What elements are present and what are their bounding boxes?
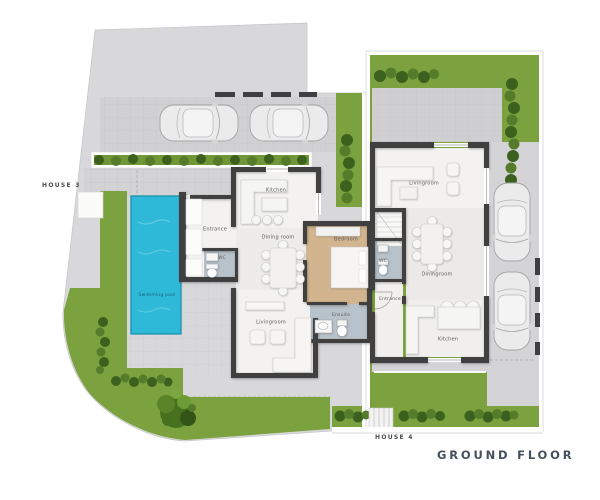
car-icon	[492, 272, 533, 350]
room-label-living-h3: Livingroom	[256, 321, 286, 326]
room-label-dining-h3: Dining room	[262, 236, 295, 241]
kitchen-island	[262, 198, 287, 211]
green-strip	[336, 93, 362, 207]
hedge-planter	[91, 152, 312, 168]
room-label-kitchen-h4: Kitchen	[438, 338, 458, 343]
car-icon	[492, 183, 533, 261]
pool-label: Swimming pool	[138, 294, 175, 299]
car-icon	[250, 103, 328, 144]
room-label-living-h4: Livingroom	[409, 182, 439, 187]
car-icon	[160, 103, 238, 144]
floor-plan: HOUSE 3 HOUSE 4 GROUND FLOOR Kitchen Ent…	[0, 0, 600, 500]
room-label-dining-h4: Diningroom	[421, 273, 452, 278]
sun-deck-pad	[78, 192, 103, 218]
room-label-ensuite-h3: Ensuite	[332, 314, 350, 319]
armchair	[447, 182, 459, 195]
tv-unit	[246, 302, 284, 310]
wall-closets	[186, 199, 202, 276]
room-label-wc-h4: WC	[379, 260, 387, 265]
page-title: GROUND FLOOR	[437, 450, 574, 462]
room-label-entrance-h4: Entrance	[379, 298, 401, 303]
armchair	[250, 330, 265, 344]
armchair	[270, 330, 285, 344]
swimming-pool	[131, 196, 181, 334]
room-label-entrance-h3: Entrance	[203, 228, 227, 233]
floor-plan-drawing	[0, 0, 600, 500]
bar-stools	[252, 216, 283, 225]
house4-label: HOUSE 4	[375, 435, 414, 441]
room-label-bedroom-h3: Bedroom	[334, 238, 358, 243]
room-label-wc-h3: WC	[218, 257, 226, 262]
boundary-fence-bottom	[332, 427, 543, 433]
wc-fixtures-house3	[206, 253, 218, 278]
coffee-table	[400, 187, 417, 199]
house3-label: HOUSE 3	[42, 183, 81, 189]
armchair	[447, 163, 459, 176]
room-label-kitchen-h3: Kitchen	[266, 189, 286, 194]
